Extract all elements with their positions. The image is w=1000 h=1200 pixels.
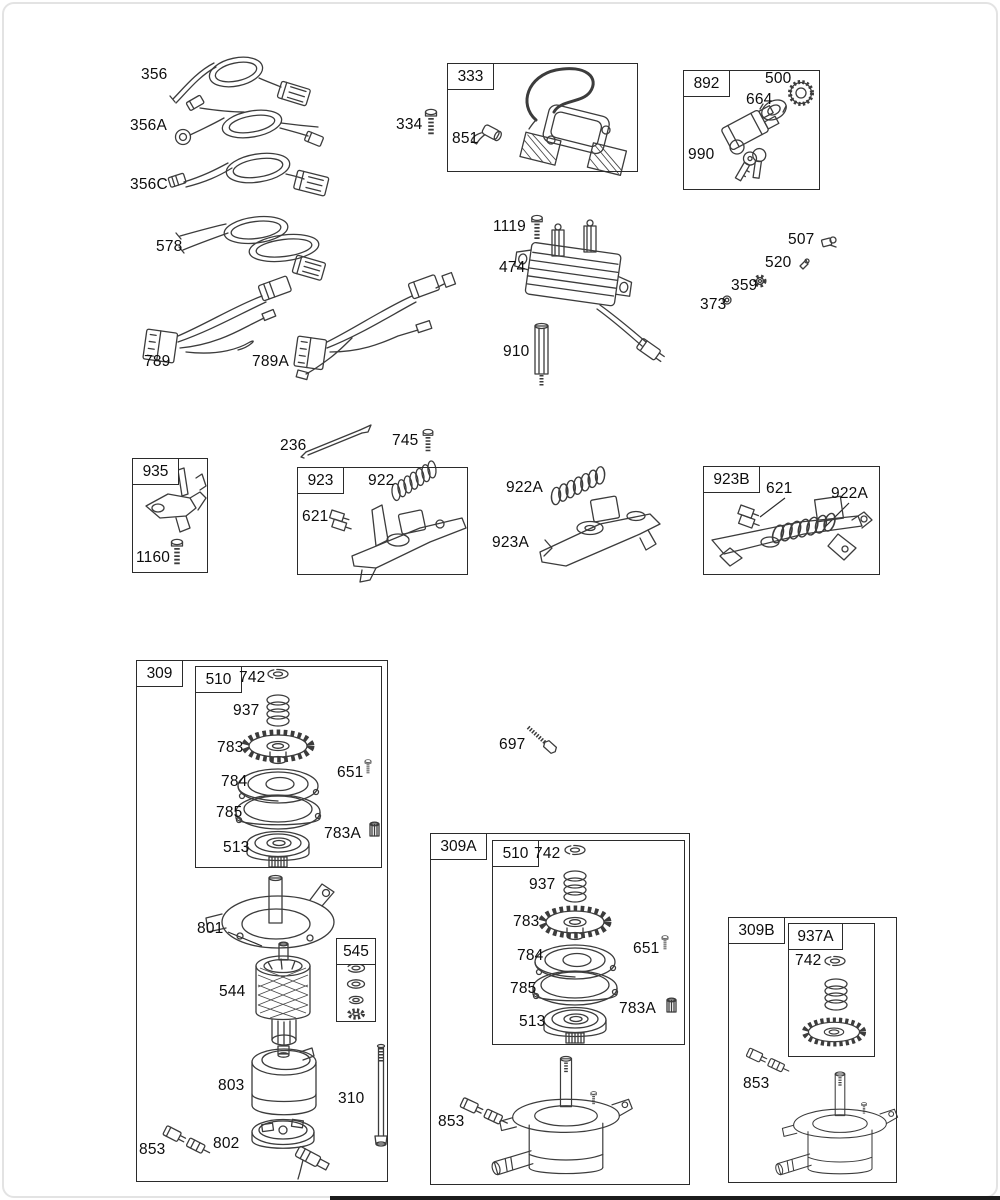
group-tag-923: 923	[298, 468, 344, 494]
wire-356a-drawing	[176, 95, 324, 147]
group-tag-309a: 309A	[431, 834, 487, 860]
group-tag-510-309a: 510	[493, 841, 539, 867]
part-label-578: 578	[156, 238, 182, 256]
part-label-664: 664	[746, 91, 772, 109]
part-label-783a-309a: 783A	[619, 1000, 656, 1018]
wire-356c-drawing	[168, 149, 329, 196]
group-tag-935: 935	[133, 459, 179, 485]
part-label-742-937a: 742	[795, 952, 821, 970]
part-label-651-309: 651	[337, 764, 363, 782]
armature-474-drawing	[511, 220, 666, 364]
part-label-500: 500	[765, 70, 791, 88]
group-tag-333: 333	[448, 64, 494, 90]
part-label-783-309: 783	[217, 739, 243, 757]
part-label-802: 802	[213, 1135, 239, 1153]
group-tag-510-309: 510	[196, 667, 242, 693]
part-label-513-309a: 513	[519, 1013, 545, 1031]
part-label-784-309: 784	[221, 773, 247, 791]
rod-236-drawing	[301, 425, 371, 458]
part-label-922a: 922A	[506, 479, 543, 497]
standoff-910-drawing	[535, 324, 548, 388]
group-tag-309: 309	[137, 661, 183, 687]
screw-745-drawing	[423, 429, 433, 452]
part-label-697: 697	[499, 736, 525, 754]
part-label-922a-923b: 922A	[831, 485, 868, 503]
part-label-783a-309: 783A	[324, 825, 361, 843]
part-label-937-309: 937	[233, 702, 259, 720]
part-label-310: 310	[338, 1090, 364, 1108]
part-label-544: 544	[219, 983, 245, 1001]
bracket-923a-drawing	[540, 464, 660, 566]
part-label-334: 334	[396, 116, 422, 134]
group-tag-937a: 937A	[789, 924, 843, 950]
part-label-923a: 923A	[492, 534, 529, 552]
part-label-621-923: 621	[302, 508, 328, 526]
wire-578-drawing	[176, 213, 326, 280]
group-tag-545: 545	[337, 939, 375, 965]
group-box-333: 333	[447, 63, 638, 172]
part-label-785-309: 785	[216, 804, 242, 822]
part-label-356a: 356A	[130, 117, 167, 135]
part-label-742-309: 742	[239, 669, 265, 687]
part-label-742-309a: 742	[534, 845, 560, 863]
part-label-621-923b: 621	[766, 480, 792, 498]
part-label-356: 356	[141, 66, 167, 84]
group-tag-923b: 923B	[704, 467, 760, 493]
cropped-content-edge	[330, 1196, 1000, 1200]
part-label-853-309b: 853	[743, 1075, 769, 1093]
part-label-789: 789	[144, 353, 170, 371]
group-box-545: 545	[336, 938, 376, 1022]
harness-789-drawing	[143, 276, 292, 363]
part-label-1119: 1119	[493, 218, 526, 236]
part-label-373: 373	[700, 296, 726, 314]
group-box-892: 892	[683, 70, 820, 190]
part-label-990: 990	[688, 146, 714, 164]
part-label-801: 801	[197, 920, 223, 938]
part-label-651-309a: 651	[633, 940, 659, 958]
part-label-910: 910	[503, 343, 529, 361]
part-label-356c: 356C	[130, 176, 168, 194]
wire-356-drawing	[170, 53, 311, 106]
part-label-507: 507	[788, 231, 814, 249]
screw-1119-drawing	[532, 215, 542, 240]
part-label-359: 359	[731, 277, 757, 295]
group-box-937a: 937A	[788, 923, 875, 1057]
group-tag-892: 892	[684, 71, 730, 97]
screw-334-drawing	[426, 109, 437, 136]
bolt-697-drawing	[525, 724, 558, 755]
part-label-922: 922	[368, 472, 394, 490]
part-label-784-309a: 784	[517, 947, 543, 965]
clamp-507-drawing	[821, 237, 836, 247]
part-label-937-309a: 937	[529, 876, 555, 894]
part-label-803: 803	[218, 1077, 244, 1095]
part-label-1160: 1160	[136, 549, 170, 567]
part-label-513-309: 513	[223, 839, 249, 857]
part-label-789a: 789A	[252, 353, 289, 371]
part-label-783-309a: 783	[513, 913, 539, 931]
parts-diagram-canvas: 356356A356C57833485150066499011194749105…	[0, 0, 1000, 1200]
part-label-474: 474	[499, 259, 525, 277]
part-label-853-309a: 853	[438, 1113, 464, 1131]
part-label-745: 745	[392, 432, 418, 450]
harness-789a-drawing	[294, 273, 456, 380]
part-label-851: 851	[452, 130, 478, 148]
part-label-520: 520	[765, 254, 791, 272]
group-tag-309b: 309B	[729, 918, 785, 944]
part-label-785-309a: 785	[510, 980, 536, 998]
part-label-236: 236	[280, 437, 306, 455]
clip-520-drawing	[800, 259, 809, 269]
part-label-853-309: 853	[139, 1141, 165, 1159]
